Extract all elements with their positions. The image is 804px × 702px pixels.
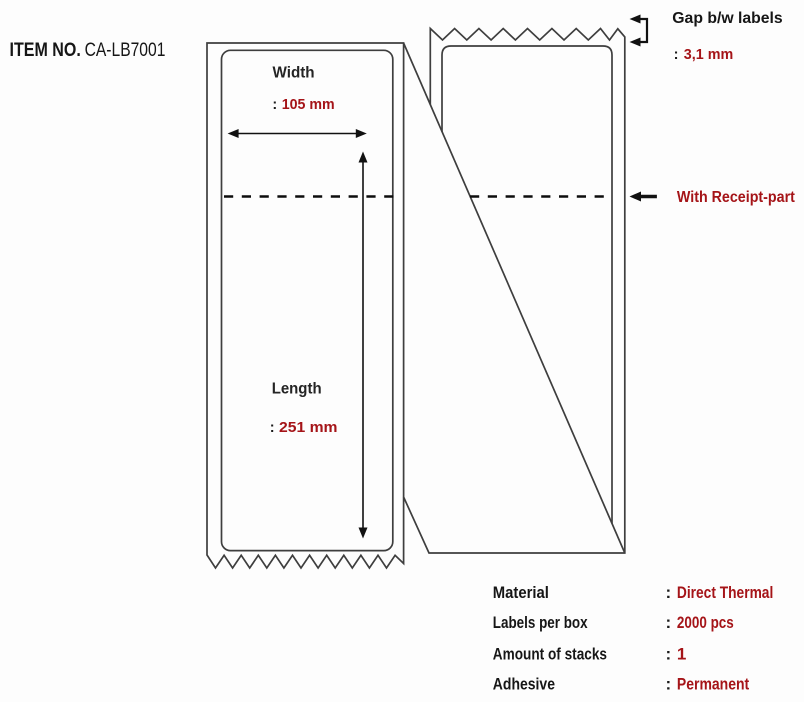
svg-text:2000 pcs: 2000 pcs: [677, 613, 734, 632]
svg-text::: :: [272, 97, 277, 113]
svg-text::: :: [674, 47, 679, 63]
svg-text:ITEM NO.: ITEM NO.: [10, 39, 81, 61]
svg-text:251 mm: 251 mm: [279, 420, 338, 436]
svg-text::: :: [270, 420, 275, 436]
svg-text::: :: [666, 613, 672, 632]
svg-text:With Receipt-part: With Receipt-part: [677, 189, 795, 206]
svg-text::: :: [666, 644, 672, 663]
svg-text:1: 1: [677, 644, 686, 663]
svg-text:Direct Thermal: Direct Thermal: [677, 583, 773, 602]
svg-text:Permanent: Permanent: [677, 675, 750, 694]
svg-text:Labels per box: Labels per box: [493, 613, 588, 632]
svg-text::: :: [666, 675, 672, 694]
svg-text:Width: Width: [273, 65, 315, 82]
svg-text:3,1 mm: 3,1 mm: [684, 47, 733, 63]
svg-text:Gap b/w labels: Gap b/w labels: [672, 10, 783, 27]
svg-text:CA-LB7001: CA-LB7001: [85, 39, 166, 61]
svg-text:105 mm: 105 mm: [282, 97, 335, 113]
svg-text:Amount of stacks: Amount of stacks: [493, 644, 607, 663]
svg-text::: :: [666, 583, 672, 602]
svg-text:Material: Material: [493, 583, 549, 602]
svg-text:Length: Length: [272, 381, 322, 398]
svg-text:Adhesive: Adhesive: [493, 675, 555, 694]
